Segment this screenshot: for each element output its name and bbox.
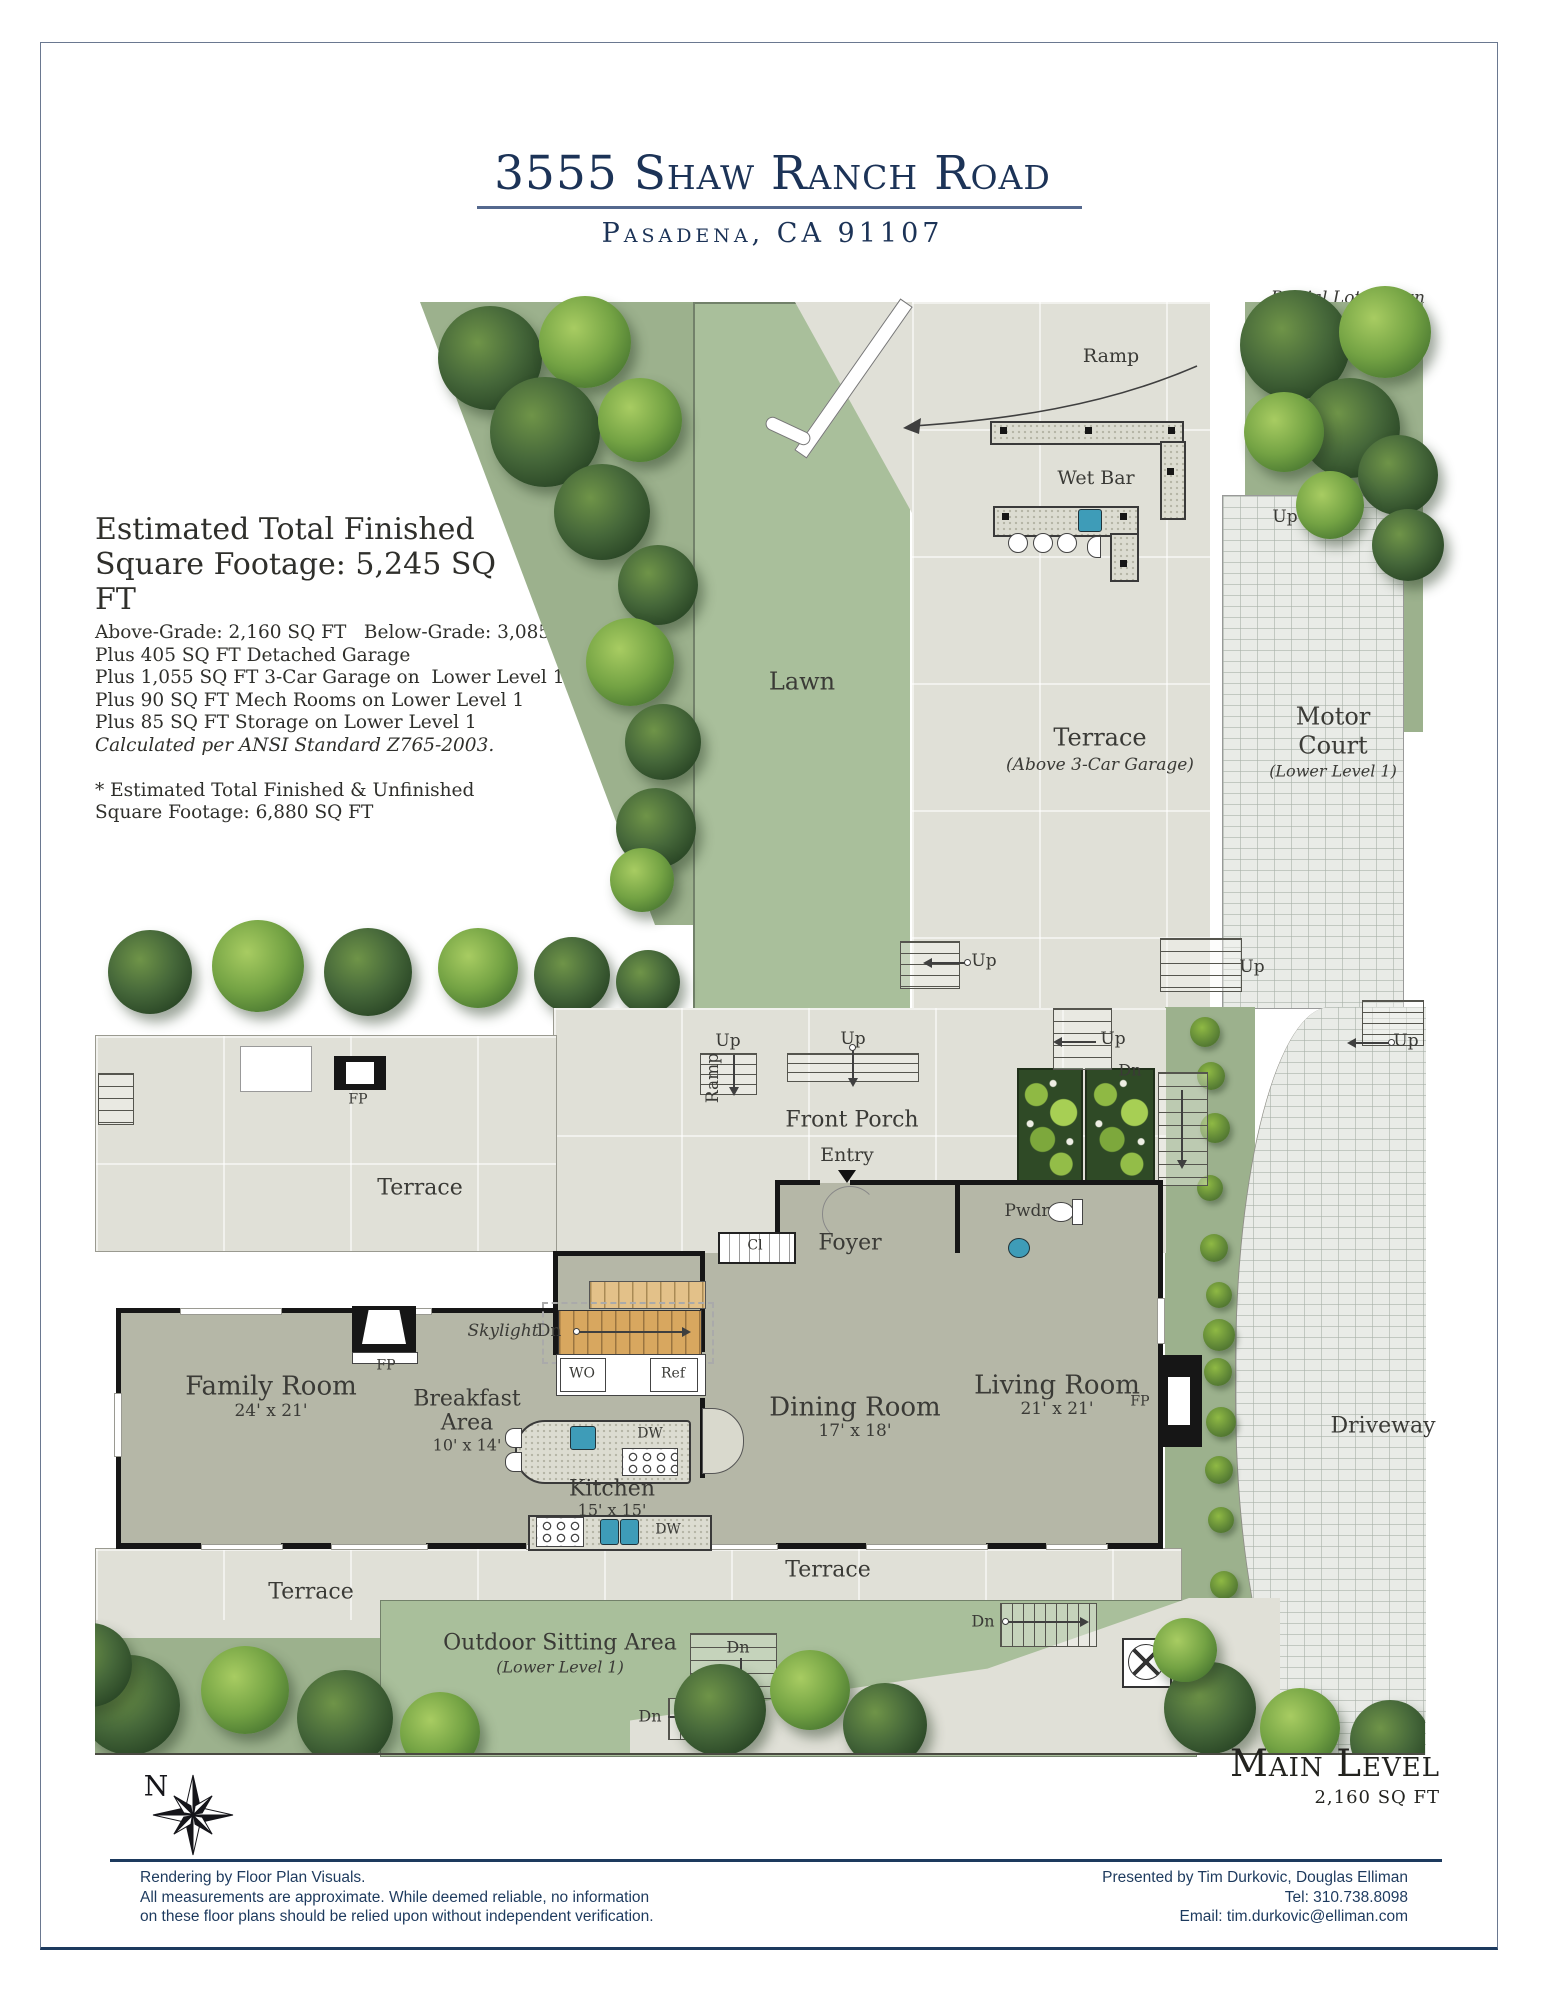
footer-left: Rendering by Floor Plan Visuals. All mea…	[140, 1868, 840, 1927]
wall-segment	[116, 1308, 121, 1393]
dn-marker: Dn	[537, 1323, 562, 1341]
family-room-dims: 24' x 21'	[234, 1403, 307, 1421]
dining-room-label: Dining Room	[769, 1394, 940, 1421]
motor-court-label-2: Court	[1298, 733, 1367, 758]
tree	[400, 1692, 480, 1754]
dn-marker: Dn	[1118, 1063, 1141, 1080]
skylight-label: Skylight	[467, 1323, 538, 1341]
terrace-fireplace-firebox	[346, 1062, 374, 1084]
wall-segment	[1158, 1447, 1163, 1548]
tree	[843, 1683, 927, 1754]
foyer-label: Foyer	[818, 1231, 881, 1254]
breakfast-label-1: Breakfast	[413, 1387, 521, 1410]
wall-segment	[1158, 1180, 1163, 1298]
wall-segment	[986, 1543, 1046, 1549]
living-room-dims: 21' x 21'	[1020, 1401, 1093, 1419]
terrace-label: Terrace	[268, 1580, 353, 1603]
footer-left-line: Rendering by Floor Plan Visuals.	[140, 1868, 840, 1888]
living-fireplace-firebox	[1168, 1377, 1190, 1425]
pwdr-label: Pwdr	[1005, 1203, 1050, 1221]
floor-plan-page: 3555 Shaw Ranch Road Pasadena, CA 91107 …	[0, 0, 1545, 2000]
up-marker: Up	[1239, 959, 1264, 977]
kitchen-sink-right	[620, 1519, 639, 1545]
level-sqft: 2,160 SQ FT	[1100, 1787, 1440, 1808]
ramp-step-arrow	[733, 1055, 735, 1087]
window	[706, 1544, 778, 1550]
window	[180, 1308, 282, 1315]
range	[536, 1517, 584, 1547]
dining-room-dims: 17' x 18'	[818, 1423, 891, 1441]
wall-segment	[426, 1543, 526, 1549]
tree	[770, 1650, 850, 1730]
porch-step-arrow	[852, 1050, 854, 1078]
wall-segment	[775, 1180, 820, 1185]
ramp-vertical-label: Ramp	[705, 1053, 723, 1103]
wall-segment	[280, 1308, 360, 1313]
front-porch-label: Front Porch	[785, 1108, 918, 1131]
terrace-step-dot	[964, 959, 971, 966]
footer-left-line: All measurements are approximate. While …	[140, 1888, 840, 1908]
wall-segment	[430, 1308, 557, 1313]
tree-layer-bottom	[95, 1590, 1425, 1754]
powder-sink	[1008, 1238, 1030, 1258]
island-stool	[505, 1452, 522, 1472]
window	[331, 1544, 428, 1550]
wall-segment	[116, 1455, 121, 1548]
toilet-tank	[1072, 1199, 1083, 1225]
stair-arrow-dot	[573, 1328, 580, 1335]
planter-stair-down-arrow	[1181, 1090, 1183, 1160]
kitchen-label: Kitchen	[569, 1477, 655, 1500]
window	[114, 1393, 122, 1457]
up-marker: Up	[971, 953, 996, 971]
footer-divider	[110, 1859, 1442, 1862]
court-step-arrow	[1352, 1042, 1390, 1044]
planter-step-arrowhead	[1048, 1037, 1062, 1047]
fireplace-label: FP	[348, 1093, 367, 1108]
closet-label: Cl	[747, 1239, 762, 1254]
ramp-label: Ramp	[1083, 347, 1139, 367]
up-marker: Up	[1100, 1031, 1125, 1049]
tree	[674, 1664, 766, 1754]
breakfast-dims: 10' x 14'	[433, 1438, 502, 1455]
refrigerator-label: Ref	[661, 1367, 685, 1382]
up-marker: Up	[1272, 509, 1297, 527]
terrace-label: Terrace	[785, 1558, 870, 1581]
footer-right-line: Presented by Tim Durkovic, Douglas Ellim…	[1000, 1868, 1408, 1888]
dishwasher-label: DW	[655, 1523, 681, 1538]
ramp-curve-arrow	[895, 358, 1205, 438]
stair-arrow	[578, 1331, 682, 1333]
level-title-block: Main Level 2,160 SQ FT	[1100, 1744, 1440, 1808]
island-sink	[570, 1426, 596, 1450]
living-room-label: Living Room	[974, 1372, 1140, 1399]
wall-segment	[850, 1180, 1163, 1185]
motor-court-label-1: Motor	[1296, 704, 1371, 729]
window	[201, 1544, 283, 1550]
outdoor-sitting-label: Outdoor Sitting Area	[443, 1631, 677, 1654]
fireplace-label: FP	[376, 1359, 395, 1374]
terrace-step-arrow	[928, 962, 966, 964]
wall-segment	[116, 1308, 180, 1313]
up-marker: Up	[715, 1033, 740, 1051]
driveway-label: Driveway	[1330, 1414, 1435, 1437]
kitchen-sink-left	[600, 1519, 619, 1545]
window	[1157, 1298, 1165, 1344]
entry-label: Entry	[820, 1146, 874, 1166]
compass-north-label: N	[144, 1771, 169, 1800]
tree	[297, 1670, 393, 1754]
dn-marker: Dn	[971, 1614, 994, 1631]
island-cooktop	[622, 1448, 678, 1476]
window	[866, 1544, 988, 1550]
island-stool	[505, 1428, 522, 1448]
planter-stair-down-arrowhead	[1177, 1160, 1187, 1174]
wet-bar-label: Wet Bar	[1057, 469, 1134, 489]
wall-segment	[553, 1251, 700, 1256]
footer-right-line: Email: tim.durkovic@elliman.com	[1000, 1907, 1408, 1927]
wall-oven-label: WO	[569, 1367, 595, 1382]
family-room-label: Family Room	[185, 1373, 357, 1400]
porch-step-arrowhead	[848, 1078, 858, 1092]
kitchen-dims: 15' x 15'	[578, 1503, 647, 1520]
motor-court-note: (Lower Level 1)	[1269, 764, 1397, 781]
stair-arrowhead	[682, 1327, 696, 1337]
tree	[201, 1646, 289, 1734]
terrace-garage-note: (Above 3-Car Garage)	[1006, 757, 1194, 775]
ramp-step-arrowhead	[729, 1087, 739, 1101]
wall-segment	[955, 1183, 960, 1253]
family-fireplace-firebox	[362, 1310, 406, 1344]
wall-segment	[281, 1543, 331, 1549]
level-title: Main Level	[1100, 1744, 1440, 1784]
wall-segment	[116, 1543, 201, 1549]
court-step-arrowhead	[1342, 1038, 1356, 1048]
terrace-label: Terrace	[377, 1176, 462, 1199]
dn-marker: Dn	[638, 1709, 661, 1726]
wall-segment	[1106, 1543, 1163, 1549]
planter-step-arrow	[1058, 1041, 1096, 1043]
toilet-bowl	[1048, 1202, 1074, 1222]
footer-left-line: on these floor plans should be relied up…	[140, 1907, 840, 1927]
dishwasher-label: DW	[637, 1427, 663, 1442]
terrace-garage-label: Terrace	[1053, 725, 1146, 750]
outdoor-sitting-note: (Lower Level 1)	[496, 1660, 624, 1677]
dn-marker: Dn	[726, 1640, 749, 1657]
breakfast-label-2: Area	[441, 1411, 494, 1434]
wall-segment	[776, 1543, 866, 1549]
tree	[1153, 1618, 1217, 1682]
footer-right-line: Tel: 310.738.8098	[1000, 1888, 1408, 1908]
footer-right: Presented by Tim Durkovic, Douglas Ellim…	[1000, 1868, 1408, 1927]
window	[1046, 1544, 1108, 1550]
up-marker: Up	[840, 1031, 865, 1049]
terrace-step-arrowhead	[918, 958, 932, 968]
up-marker: Up	[1393, 1033, 1418, 1051]
lawn-label: Lawn	[769, 669, 835, 694]
